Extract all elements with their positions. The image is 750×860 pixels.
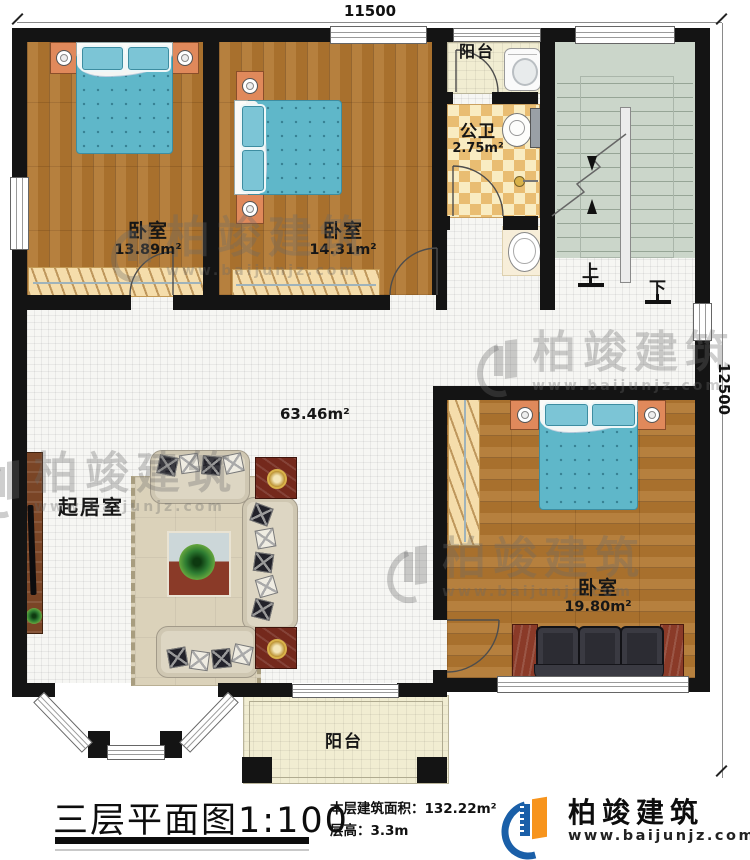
logo-building-orange	[532, 797, 547, 839]
floor-height-label: 层高：	[330, 823, 371, 839]
dimension-line-top	[17, 22, 722, 23]
brand-logo-icon	[500, 792, 558, 850]
title-info: 本层建筑面积：132.22m² 层高：3.3m	[330, 798, 497, 843]
bathroom-label: 公卫 2.75m²	[443, 123, 513, 157]
living-room-area: 63.46m²	[280, 405, 350, 423]
brand-text: 柏竣建筑 www.baijunjz.com	[568, 798, 750, 845]
living-room-label: 起居室	[58, 491, 124, 520]
stairs-up-marker	[578, 283, 604, 287]
floor-height-value: 3.3m	[371, 823, 409, 839]
dimension-height-label: 12500	[715, 359, 733, 419]
plan-title: 三层平面图1:100	[53, 792, 349, 843]
logo-building-blue	[520, 804, 530, 836]
room-area: 13.89m²	[98, 242, 198, 258]
room-name: 卧室	[98, 221, 198, 242]
stairs-down-marker	[645, 300, 671, 304]
title-underline	[55, 837, 309, 844]
bedroom3-label: 卧室 19.80m²	[548, 578, 648, 616]
plan-title-text: 三层平面图	[53, 801, 238, 841]
room-area: 19.80m²	[548, 599, 648, 615]
balcony-top-label: 阳台	[459, 38, 495, 62]
brand-website: www.baijunjz.com	[568, 828, 750, 844]
balcony-bottom-label: 阳台	[325, 727, 363, 752]
door-arc-bedroom3	[447, 620, 499, 672]
bedroom2-label: 卧室 14.31m²	[293, 221, 393, 259]
brand-logo: 柏竣建筑 www.baijunjz.com	[500, 792, 750, 850]
bedroom1-label: 卧室 13.89m²	[98, 221, 198, 259]
stair-break-line	[552, 134, 626, 216]
dimension-width-label: 11500	[335, 2, 405, 20]
floorplan-canvas: 11500 12500	[0, 0, 750, 860]
logo-swoosh	[491, 790, 569, 860]
floor-area-value: 132.22m²	[425, 801, 497, 817]
door-swing-overlay	[0, 0, 750, 790]
stair-arrow-down	[587, 156, 597, 171]
room-name: 卧室	[548, 578, 648, 599]
room-area: 14.31m²	[293, 242, 393, 258]
room-name: 公卫	[443, 123, 513, 142]
title-underline-thin	[55, 849, 309, 851]
room-area: 2.75m²	[443, 142, 513, 157]
floor-area-label: 本层建筑面积：	[330, 801, 425, 817]
room-name: 卧室	[293, 221, 393, 242]
door-arc-bedroom2	[390, 248, 437, 295]
stair-arrow-up	[587, 199, 597, 214]
door-arc-bathroom	[453, 166, 503, 216]
floor-height-row: 层高：3.3m	[330, 820, 497, 842]
brand-name: 柏竣建筑	[568, 798, 750, 829]
floor-area-row: 本层建筑面积：132.22m²	[330, 798, 497, 820]
